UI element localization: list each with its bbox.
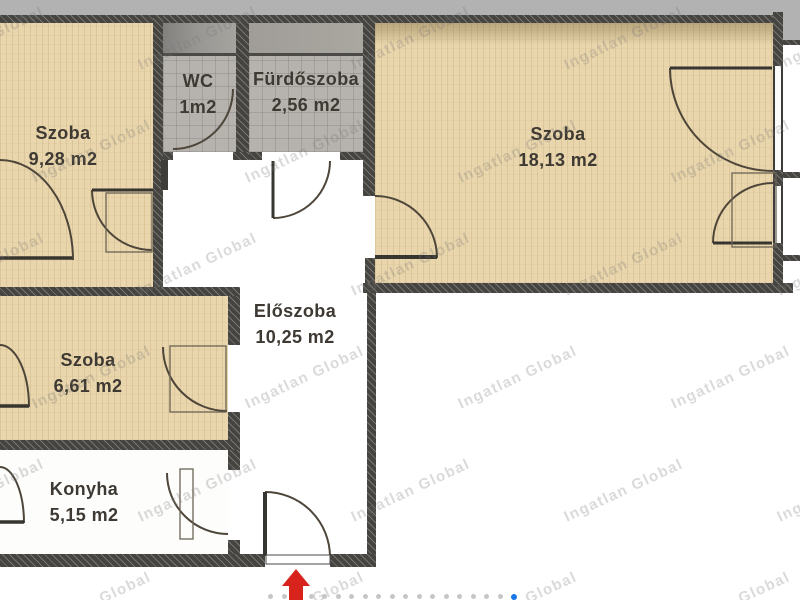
room-name: Konyha xyxy=(22,476,146,502)
label-wc: WC 1m2 xyxy=(158,68,238,120)
room-area: 18,13 m2 xyxy=(488,147,628,173)
bathroom-duct-area xyxy=(249,23,363,56)
watermark-text: Ingatlan Global xyxy=(668,568,792,600)
carousel-dot[interactable] xyxy=(336,594,341,599)
label-konyha: Konyha 5,15 m2 xyxy=(22,476,146,528)
wall-konyha-hall-upper xyxy=(228,450,240,470)
carousel-dot[interactable] xyxy=(484,594,489,599)
room-area: 2,56 m2 xyxy=(244,92,368,118)
watermark-text: Ingatlan Global xyxy=(242,342,366,412)
room-name: Előszoba xyxy=(223,298,367,324)
room-name: Fürdőszoba xyxy=(244,66,368,92)
label-szoba-1: Szoba 9,28 m2 xyxy=(3,120,123,172)
szoba-2-top-shadow xyxy=(375,21,773,45)
wall-szoba3-konyha xyxy=(0,440,240,450)
carousel-dot[interactable] xyxy=(309,594,314,599)
wall-wc-bottom-left xyxy=(163,152,173,160)
wall-szoba2-bottom xyxy=(363,283,793,293)
carousel-dot[interactable] xyxy=(444,594,449,599)
label-szoba-3: Szoba 6,61 m2 xyxy=(26,347,150,399)
szoba2-balcony-door-opening-1 xyxy=(773,66,783,170)
carousel-dot[interactable] xyxy=(322,594,327,599)
wall-hall-right xyxy=(367,293,376,557)
carousel-dot[interactable] xyxy=(268,594,273,599)
carousel-dot[interactable] xyxy=(282,594,287,599)
carousel-dot[interactable] xyxy=(349,594,354,599)
watermark-text: Ingatlan Global xyxy=(561,455,685,525)
watermark-text: Ingatlan Global xyxy=(774,455,800,525)
floor-plan-image: Szoba 9,28 m2 WC 1m2 Fürdőszoba 2,56 m2 … xyxy=(0,0,800,600)
wc-door-leaf xyxy=(161,160,168,190)
room-name: Szoba xyxy=(26,347,150,373)
watermark-text: Ingatlan Global xyxy=(455,342,579,412)
room-name: Szoba xyxy=(3,120,123,146)
carousel-dot[interactable] xyxy=(417,594,422,599)
carousel-dot[interactable] xyxy=(471,594,476,599)
room-area: 5,15 m2 xyxy=(22,502,146,528)
carousel-dot[interactable] xyxy=(363,594,368,599)
watermark-text: Ingatlan Global xyxy=(29,568,153,600)
wall-szoba2-right-pier xyxy=(773,170,783,186)
carousel-dot[interactable] xyxy=(457,594,462,599)
entrance-threshold xyxy=(266,555,330,564)
room-area: 9,28 m2 xyxy=(3,146,123,172)
wall-bath-bottom-left xyxy=(249,152,262,160)
entrance-arrow-shaft xyxy=(289,584,303,600)
balcony-stub-bottom xyxy=(783,255,800,261)
room-area: 6,61 m2 xyxy=(26,373,150,399)
label-szoba-2: Szoba 18,13 m2 xyxy=(488,121,628,173)
wall-bottom-right xyxy=(330,554,376,567)
wall-top xyxy=(0,15,783,23)
watermark-text: Ingatlan Global xyxy=(668,342,792,412)
balcony-stub-top xyxy=(783,40,800,45)
room-name: WC xyxy=(158,68,238,94)
carousel-dot[interactable] xyxy=(390,594,395,599)
carousel-dot-active[interactable] xyxy=(511,594,517,600)
room-area: 10,25 m2 xyxy=(223,324,367,350)
carousel-dot[interactable] xyxy=(403,594,408,599)
wall-wc-bottom-right xyxy=(233,152,249,160)
top-gray-strip xyxy=(0,0,783,15)
wall-szoba1-szoba3 xyxy=(0,287,240,296)
wall-szoba2-right-top xyxy=(773,12,783,66)
carousel-dot[interactable] xyxy=(430,594,435,599)
room-area: 1m2 xyxy=(158,94,238,120)
carousel-dot[interactable] xyxy=(498,594,503,599)
label-furdoszoba: Fürdőszoba 2,56 m2 xyxy=(244,66,368,118)
bathroom-door-arc xyxy=(273,161,330,218)
carousel-dot[interactable] xyxy=(376,594,381,599)
label-eloszoba: Előszoba 10,25 m2 xyxy=(223,298,367,350)
wall-szoba1-hall xyxy=(153,15,163,295)
wall-bottom-left xyxy=(0,554,265,567)
wc-duct-area xyxy=(163,23,236,56)
room-name: Szoba xyxy=(488,121,628,147)
entrance-door-arc xyxy=(265,492,330,557)
balcony-stub-middle xyxy=(783,172,800,178)
wall-bath-bottom-right xyxy=(340,152,363,160)
szoba2-balcony-door-opening-2 xyxy=(773,186,783,243)
